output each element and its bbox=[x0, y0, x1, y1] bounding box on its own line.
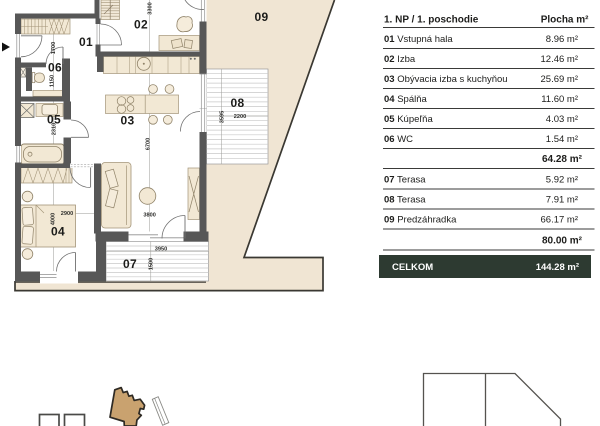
svg-text:08: 08 bbox=[231, 96, 245, 110]
svg-text:4.03 m²: 4.03 m² bbox=[546, 114, 578, 125]
svg-text:04: 04 bbox=[51, 225, 65, 239]
svg-text:07: 07 bbox=[123, 257, 137, 271]
svg-text:01 Vstupná hala: 01 Vstupná hala bbox=[384, 34, 453, 45]
svg-text:02 Izba: 02 Izba bbox=[384, 54, 416, 65]
svg-text:06: 06 bbox=[48, 61, 62, 75]
svg-text:1150: 1150 bbox=[50, 75, 56, 87]
svg-text:01: 01 bbox=[79, 35, 93, 49]
svg-text:6700: 6700 bbox=[146, 138, 152, 150]
svg-text:04 Spálňa: 04 Spálňa bbox=[384, 94, 428, 105]
svg-text:08 Terasa: 08 Terasa bbox=[384, 195, 426, 206]
svg-text:06 WC: 06 WC bbox=[384, 134, 413, 145]
svg-text:3800: 3800 bbox=[143, 213, 155, 219]
svg-text:CELKOM: CELKOM bbox=[392, 262, 433, 273]
svg-text:Plocha m²: Plocha m² bbox=[541, 15, 589, 26]
svg-text:2200: 2200 bbox=[234, 114, 246, 120]
svg-text:80.00 m²: 80.00 m² bbox=[542, 236, 583, 247]
svg-text:4000: 4000 bbox=[51, 213, 57, 225]
svg-text:12.46 m²: 12.46 m² bbox=[541, 54, 579, 65]
svg-text:03 Obývacia izba s kuchyňou: 03 Obývacia izba s kuchyňou bbox=[384, 74, 508, 85]
svg-text:1. NP / 1. poschodie: 1. NP / 1. poschodie bbox=[384, 15, 479, 26]
svg-text:3950: 3950 bbox=[155, 247, 167, 253]
svg-text:64.28 m²: 64.28 m² bbox=[542, 154, 583, 165]
svg-text:25.69 m²: 25.69 m² bbox=[541, 74, 579, 85]
svg-text:2900: 2900 bbox=[61, 211, 73, 217]
svg-text:3300: 3300 bbox=[148, 2, 154, 14]
svg-text:09: 09 bbox=[255, 10, 269, 24]
svg-text:5.92 m²: 5.92 m² bbox=[546, 175, 578, 186]
svg-text:3595: 3595 bbox=[220, 111, 226, 123]
svg-text:1.54 m²: 1.54 m² bbox=[546, 134, 578, 145]
svg-text:8.96 m²: 8.96 m² bbox=[546, 34, 578, 45]
svg-text:09 Predzáhradka: 09 Predzáhradka bbox=[384, 215, 457, 226]
svg-text:1700: 1700 bbox=[51, 42, 57, 54]
svg-text:07 Terasa: 07 Terasa bbox=[384, 175, 426, 186]
svg-text:02: 02 bbox=[134, 18, 148, 32]
svg-text:144.28 m²: 144.28 m² bbox=[536, 262, 579, 273]
svg-text:1500: 1500 bbox=[149, 258, 155, 270]
svg-text:7.91 m²: 7.91 m² bbox=[546, 195, 578, 206]
svg-text:11.60 m²: 11.60 m² bbox=[541, 94, 578, 105]
svg-text:2310: 2310 bbox=[52, 123, 58, 135]
svg-text:05 Kúpeľňa: 05 Kúpeľňa bbox=[384, 114, 433, 125]
svg-text:66.17 m²: 66.17 m² bbox=[541, 215, 579, 226]
svg-text:03: 03 bbox=[121, 114, 135, 128]
